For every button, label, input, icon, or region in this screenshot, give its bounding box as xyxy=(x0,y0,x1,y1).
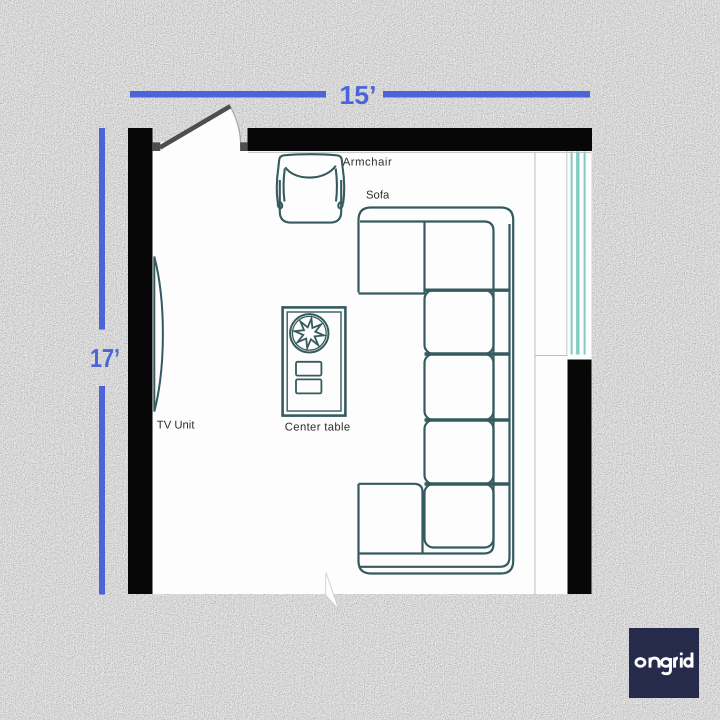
svg-text:17’: 17’ xyxy=(90,343,120,373)
svg-text:Sofa: Sofa xyxy=(366,190,390,202)
svg-text:TV Unit: TV Unit xyxy=(157,420,196,432)
svg-text:15’: 15’ xyxy=(340,80,377,110)
svg-text:Armchair: Armchair xyxy=(343,156,393,168)
svg-text:Center table: Center table xyxy=(285,422,351,434)
